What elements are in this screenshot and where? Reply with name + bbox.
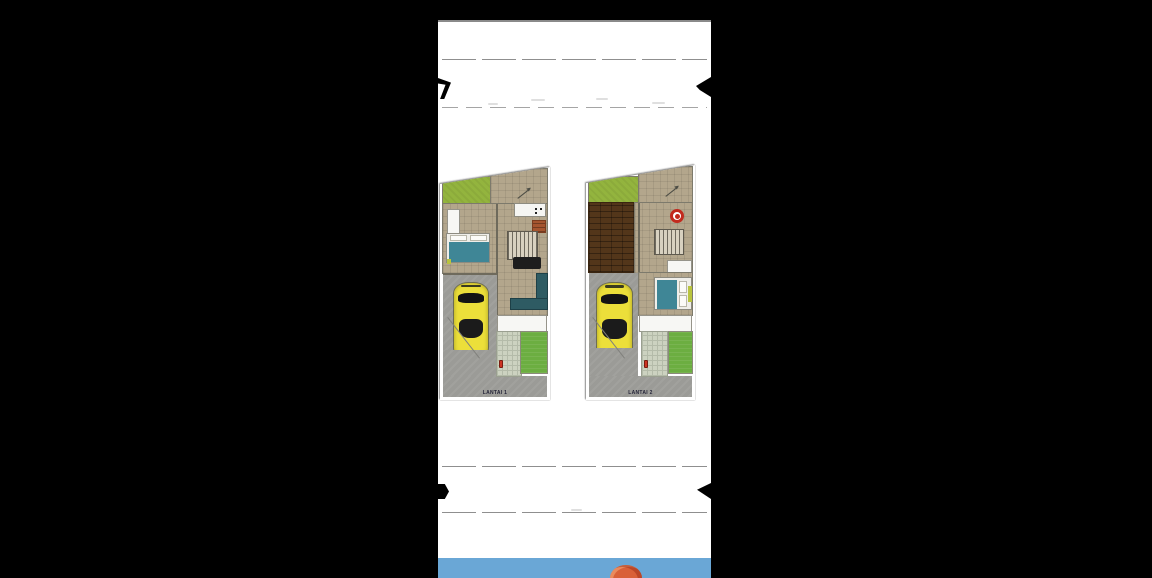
stove-burner (535, 208, 537, 210)
stove-burner (540, 208, 542, 210)
upper-terrace-floor (639, 167, 692, 203)
ribbon-end-icon (438, 78, 451, 99)
faded-title-text (571, 509, 582, 511)
car-windshield (601, 294, 628, 304)
plan-caption: LANTAI 2 (586, 390, 695, 396)
stove-burner (535, 212, 537, 214)
paver-path (642, 332, 667, 376)
car-windshield (458, 293, 484, 303)
front-lawn (521, 332, 547, 373)
plan-caption: LANTAI 1 (440, 390, 550, 396)
faded-title-text (652, 102, 665, 104)
hydrant (499, 360, 503, 368)
divider-rule-bottom (442, 512, 707, 513)
porch-slab (639, 315, 692, 332)
faded-title-text (531, 99, 545, 101)
kitchen-counter (514, 203, 546, 217)
plant (688, 286, 692, 302)
faded-title-text (596, 98, 608, 100)
staircase (507, 231, 538, 260)
l-sofa-horizontal (510, 298, 548, 310)
bed (446, 233, 490, 263)
ribbon-end-icon (697, 483, 711, 499)
divider-rule (442, 107, 707, 108)
porch-slab (497, 315, 547, 332)
car-grille (461, 285, 480, 287)
roof-garden (589, 177, 639, 203)
bed (654, 277, 692, 310)
landing-slab (667, 260, 692, 273)
wood-floor-room (589, 203, 635, 272)
pillow (679, 295, 687, 307)
faded-title-text (488, 103, 498, 105)
staircase (654, 229, 684, 255)
roof-garden (443, 177, 491, 205)
car-grille (605, 285, 625, 287)
plant (447, 259, 451, 264)
sofa-black (513, 257, 541, 269)
upper-terrace-floor (491, 169, 547, 205)
divider-rule-top (442, 59, 707, 60)
car-rear-window (602, 319, 627, 339)
wardrobe (447, 209, 460, 235)
pillow (450, 235, 467, 241)
floor-plan-lantai-2: LANTAI 2 (586, 165, 695, 400)
round-red-table (670, 209, 684, 223)
paver-path (497, 332, 521, 376)
bed-blanket (449, 242, 489, 262)
hydrant (644, 360, 648, 368)
pillow (679, 281, 687, 293)
footer-sky-illustration (438, 558, 711, 578)
balloon-top-icon (610, 565, 642, 578)
pillow (470, 235, 487, 241)
front-lawn (669, 332, 692, 373)
document-page: LANTAI 1 (438, 20, 711, 576)
bed-blanket (657, 280, 677, 309)
divider-rule (442, 466, 707, 467)
ribbon-end-icon (696, 77, 711, 97)
ribbon-end-icon (438, 484, 449, 499)
floor-plan-lantai-1: LANTAI 1 (440, 167, 550, 400)
table-center (675, 214, 680, 219)
